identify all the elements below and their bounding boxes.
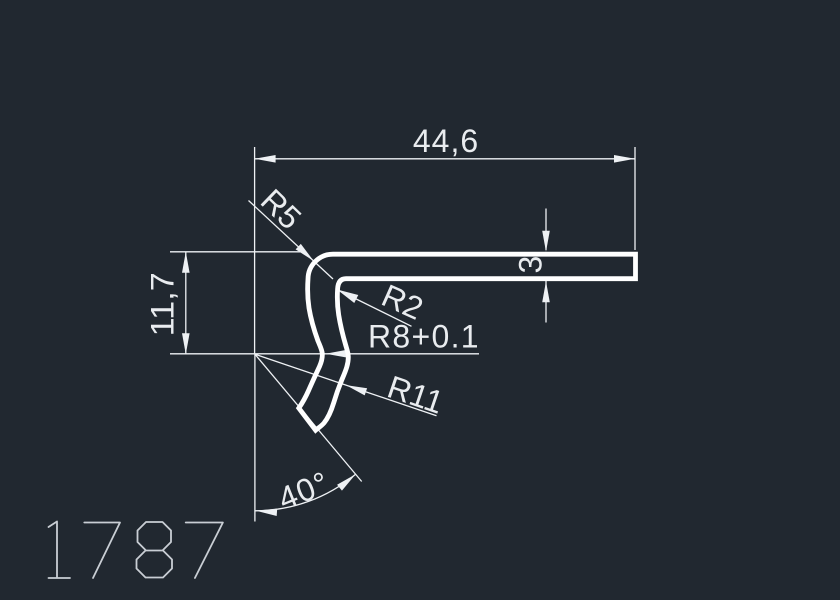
svg-text:11,7: 11,7 <box>145 272 181 336</box>
svg-text:44,6: 44,6 <box>413 123 479 159</box>
svg-text:R8+0.1: R8+0.1 <box>368 319 480 355</box>
svg-text:3: 3 <box>513 256 549 274</box>
